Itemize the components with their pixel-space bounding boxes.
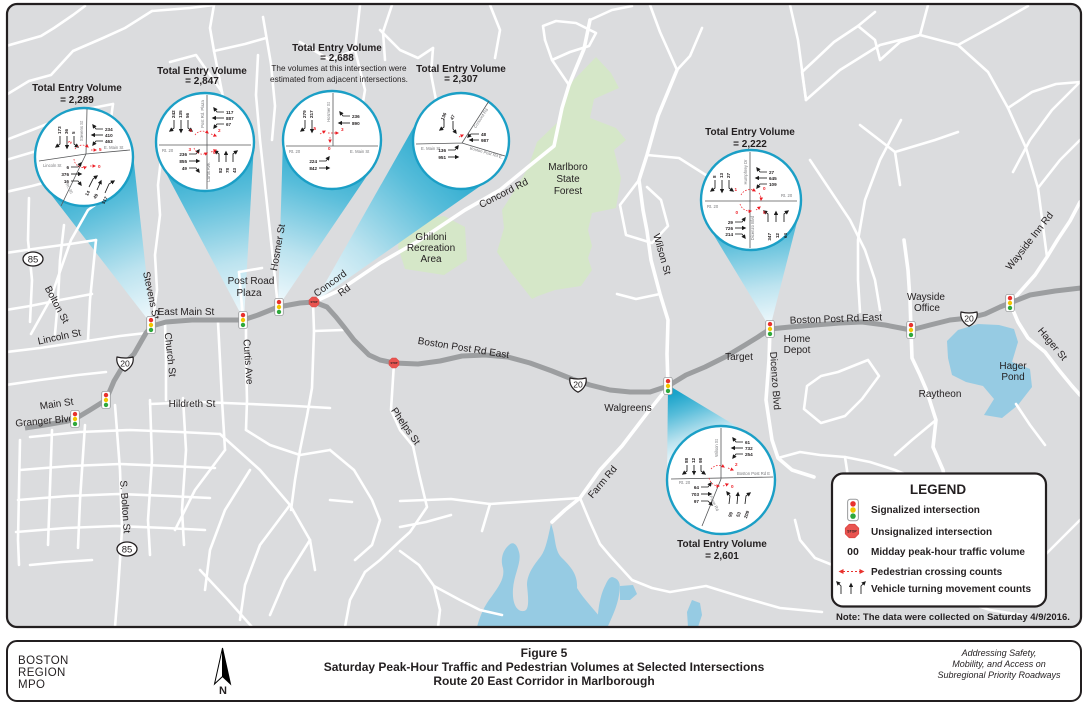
svg-text:347: 347 — [767, 233, 772, 241]
svg-text:East Main St: East Main St — [158, 307, 215, 318]
svg-text:236: 236 — [179, 152, 187, 157]
svg-text:Rt. 20: Rt. 20 — [289, 149, 301, 154]
svg-text:29: 29 — [728, 220, 734, 225]
svg-text:136: 136 — [438, 148, 446, 153]
svg-text:Humphrey Dr: Humphrey Dr — [743, 159, 748, 185]
svg-text:Rt. 20: Rt. 20 — [162, 148, 174, 153]
svg-text:224: 224 — [309, 159, 317, 164]
svg-text:173: 173 — [57, 126, 62, 134]
svg-text:Wayside: Wayside — [907, 292, 945, 303]
svg-text:Curtis Ave.: Curtis Ave. — [206, 162, 211, 182]
svg-text:242: 242 — [171, 110, 176, 118]
svg-text:Subregional Priority Roadways: Subregional Priority Roadways — [937, 670, 1061, 680]
svg-text:98: 98 — [698, 457, 703, 463]
svg-text:Recreation: Recreation — [407, 243, 455, 254]
svg-text:0: 0 — [763, 210, 766, 215]
svg-text:0: 0 — [213, 150, 216, 155]
svg-text:3: 3 — [341, 127, 344, 132]
svg-text:Total Entry Volume: Total Entry Volume — [677, 539, 767, 550]
svg-text:Raytheon: Raytheon — [919, 389, 962, 400]
svg-text:410: 410 — [105, 133, 113, 138]
svg-text:LEGEND: LEGEND — [910, 482, 967, 497]
svg-text:Saturday Peak-Hour Traffic and: Saturday Peak-Hour Traffic and Pedestria… — [324, 660, 765, 674]
svg-text:Signalized intersection: Signalized intersection — [871, 505, 980, 516]
svg-text:951: 951 — [438, 155, 446, 160]
svg-text:109: 109 — [769, 182, 777, 187]
svg-text:Pond: Pond — [1001, 372, 1024, 383]
svg-text:Note: The data were collected: Note: The data were collected on Saturda… — [836, 612, 1070, 623]
svg-text:0: 0 — [328, 146, 331, 151]
svg-text:12: 12 — [775, 233, 780, 239]
svg-text:0: 0 — [763, 186, 766, 191]
svg-text:MPO: MPO — [18, 679, 45, 691]
svg-text:16: 16 — [64, 179, 70, 184]
svg-text:N: N — [219, 685, 227, 697]
svg-text:214: 214 — [725, 232, 733, 237]
svg-text:Forest: Forest — [554, 186, 583, 197]
svg-text:2: 2 — [218, 128, 221, 133]
svg-text:279: 279 — [302, 110, 307, 118]
svg-text:97: 97 — [694, 499, 700, 504]
svg-text:Wilson St: Wilson St — [714, 438, 719, 457]
svg-text:= 2,688: = 2,688 — [320, 53, 354, 64]
svg-text:67: 67 — [226, 122, 232, 127]
svg-text:855: 855 — [179, 159, 187, 164]
svg-text:Dicenzo Blvd: Dicenzo Blvd — [750, 215, 755, 240]
svg-text:12: 12 — [691, 457, 696, 463]
svg-text:Area: Area — [420, 254, 442, 265]
svg-text:Walgreens: Walgreens — [604, 403, 651, 414]
svg-text:Total Entry Volume: Total Entry Volume — [32, 83, 122, 94]
svg-text:Office: Office — [914, 303, 940, 314]
svg-text:Rt. 20: Rt. 20 — [679, 480, 691, 485]
svg-text:E. Main St: E. Main St — [350, 149, 370, 154]
svg-text:estimated from adjacent inters: estimated from adjacent intersections. — [270, 75, 408, 84]
svg-text:5: 5 — [189, 128, 192, 133]
svg-text:Vehicle turning movement count: Vehicle turning movement counts — [871, 584, 1031, 595]
svg-text:Depot: Depot — [784, 345, 811, 356]
svg-text:State: State — [556, 174, 580, 185]
svg-text:726: 726 — [725, 226, 733, 231]
svg-text:Lincoln St: Lincoln St — [43, 163, 62, 168]
svg-text:64: 64 — [783, 233, 788, 239]
svg-text:890: 890 — [352, 121, 360, 126]
svg-text:43: 43 — [232, 167, 237, 173]
svg-text:0: 0 — [98, 164, 101, 169]
svg-text:Boston Post Rd E: Boston Post Rd E — [737, 471, 770, 476]
svg-text:842: 842 — [309, 166, 317, 171]
svg-text:3: 3 — [188, 147, 191, 152]
svg-text:Hosmer St: Hosmer St — [326, 101, 331, 122]
svg-text:8: 8 — [712, 175, 717, 178]
svg-text:Pedestrian crossing counts: Pedestrian crossing counts — [871, 567, 1003, 578]
svg-text:27: 27 — [769, 170, 775, 175]
svg-text:703: 703 — [691, 492, 699, 497]
svg-text:5: 5 — [313, 126, 316, 131]
svg-text:Total Entry Volume: Total Entry Volume — [705, 127, 795, 138]
svg-text:Post Rd. Plaza: Post Rd. Plaza — [200, 99, 205, 127]
svg-text:0: 0 — [731, 484, 734, 489]
svg-text:Addressing Safety,: Addressing Safety, — [961, 648, 1037, 658]
svg-text:BOSTON: BOSTON — [18, 655, 69, 667]
svg-text:Hager: Hager — [999, 361, 1027, 372]
svg-text:Plaza: Plaza — [236, 288, 261, 299]
svg-text:135: 135 — [178, 110, 183, 118]
svg-text:Marlboro: Marlboro — [548, 162, 588, 173]
svg-text:217: 217 — [309, 110, 314, 118]
svg-text:117: 117 — [226, 110, 234, 115]
svg-text:Ghiloni: Ghiloni — [415, 232, 446, 243]
svg-text:78: 78 — [225, 167, 230, 173]
svg-text:= 2,847: = 2,847 — [185, 76, 219, 87]
svg-text:88: 88 — [684, 457, 689, 463]
svg-text:E. Main St: E. Main St — [104, 145, 124, 150]
svg-text:Hildreth St: Hildreth St — [169, 399, 216, 410]
svg-text:Target: Target — [725, 352, 753, 363]
svg-text:48: 48 — [481, 132, 487, 137]
svg-text:Mobility, and Access on: Mobility, and Access on — [952, 659, 1046, 669]
svg-text:13: 13 — [719, 172, 724, 178]
svg-text:5: 5 — [99, 147, 102, 152]
svg-text:= 2,601: = 2,601 — [705, 551, 739, 562]
svg-text:56: 56 — [185, 112, 190, 118]
svg-text:Route 20 East Corridor in Marl: Route 20 East Corridor in Marlborough — [433, 674, 654, 688]
svg-text:2: 2 — [735, 462, 738, 467]
svg-text:645: 645 — [769, 176, 777, 181]
svg-text:= 2,307: = 2,307 — [444, 74, 478, 85]
svg-text:Midday peak-hour traffic volum: Midday peak-hour traffic volume — [871, 547, 1025, 558]
svg-text:887: 887 — [226, 116, 234, 121]
svg-text:236: 236 — [352, 114, 360, 119]
svg-text:Post Road: Post Road — [228, 276, 275, 287]
svg-text:Rt. 20: Rt. 20 — [781, 193, 793, 198]
svg-text:00: 00 — [847, 546, 859, 558]
svg-text:5: 5 — [71, 131, 76, 134]
svg-text:Unsignalized intersection: Unsignalized intersection — [871, 527, 992, 538]
svg-text:376: 376 — [61, 172, 69, 177]
svg-text:36: 36 — [64, 128, 69, 134]
svg-text:= 2,222: = 2,222 — [733, 139, 767, 150]
svg-text:= 2,289: = 2,289 — [60, 95, 94, 106]
svg-text:REGION: REGION — [18, 667, 66, 679]
svg-text:49: 49 — [182, 166, 188, 171]
svg-text:Rt. 20: Rt. 20 — [707, 204, 719, 209]
svg-text:Stevens St: Stevens St — [79, 120, 84, 141]
svg-text:Figure 5: Figure 5 — [521, 646, 568, 660]
svg-text:1: 1 — [734, 187, 737, 192]
svg-text:The volumes at this intersecti: The volumes at this intersection were — [271, 64, 407, 73]
svg-text:254: 254 — [745, 452, 753, 457]
svg-text:987: 987 — [481, 138, 489, 143]
svg-text:732: 732 — [745, 446, 753, 451]
svg-text:82: 82 — [218, 167, 223, 173]
svg-text:Home: Home — [784, 334, 811, 345]
svg-text:234: 234 — [105, 127, 113, 132]
svg-text:6: 6 — [66, 165, 69, 170]
svg-text:0: 0 — [735, 210, 738, 215]
svg-text:27: 27 — [726, 172, 731, 178]
svg-text:64: 64 — [694, 485, 700, 490]
svg-text:61: 61 — [745, 440, 751, 445]
svg-text:463: 463 — [105, 139, 113, 144]
